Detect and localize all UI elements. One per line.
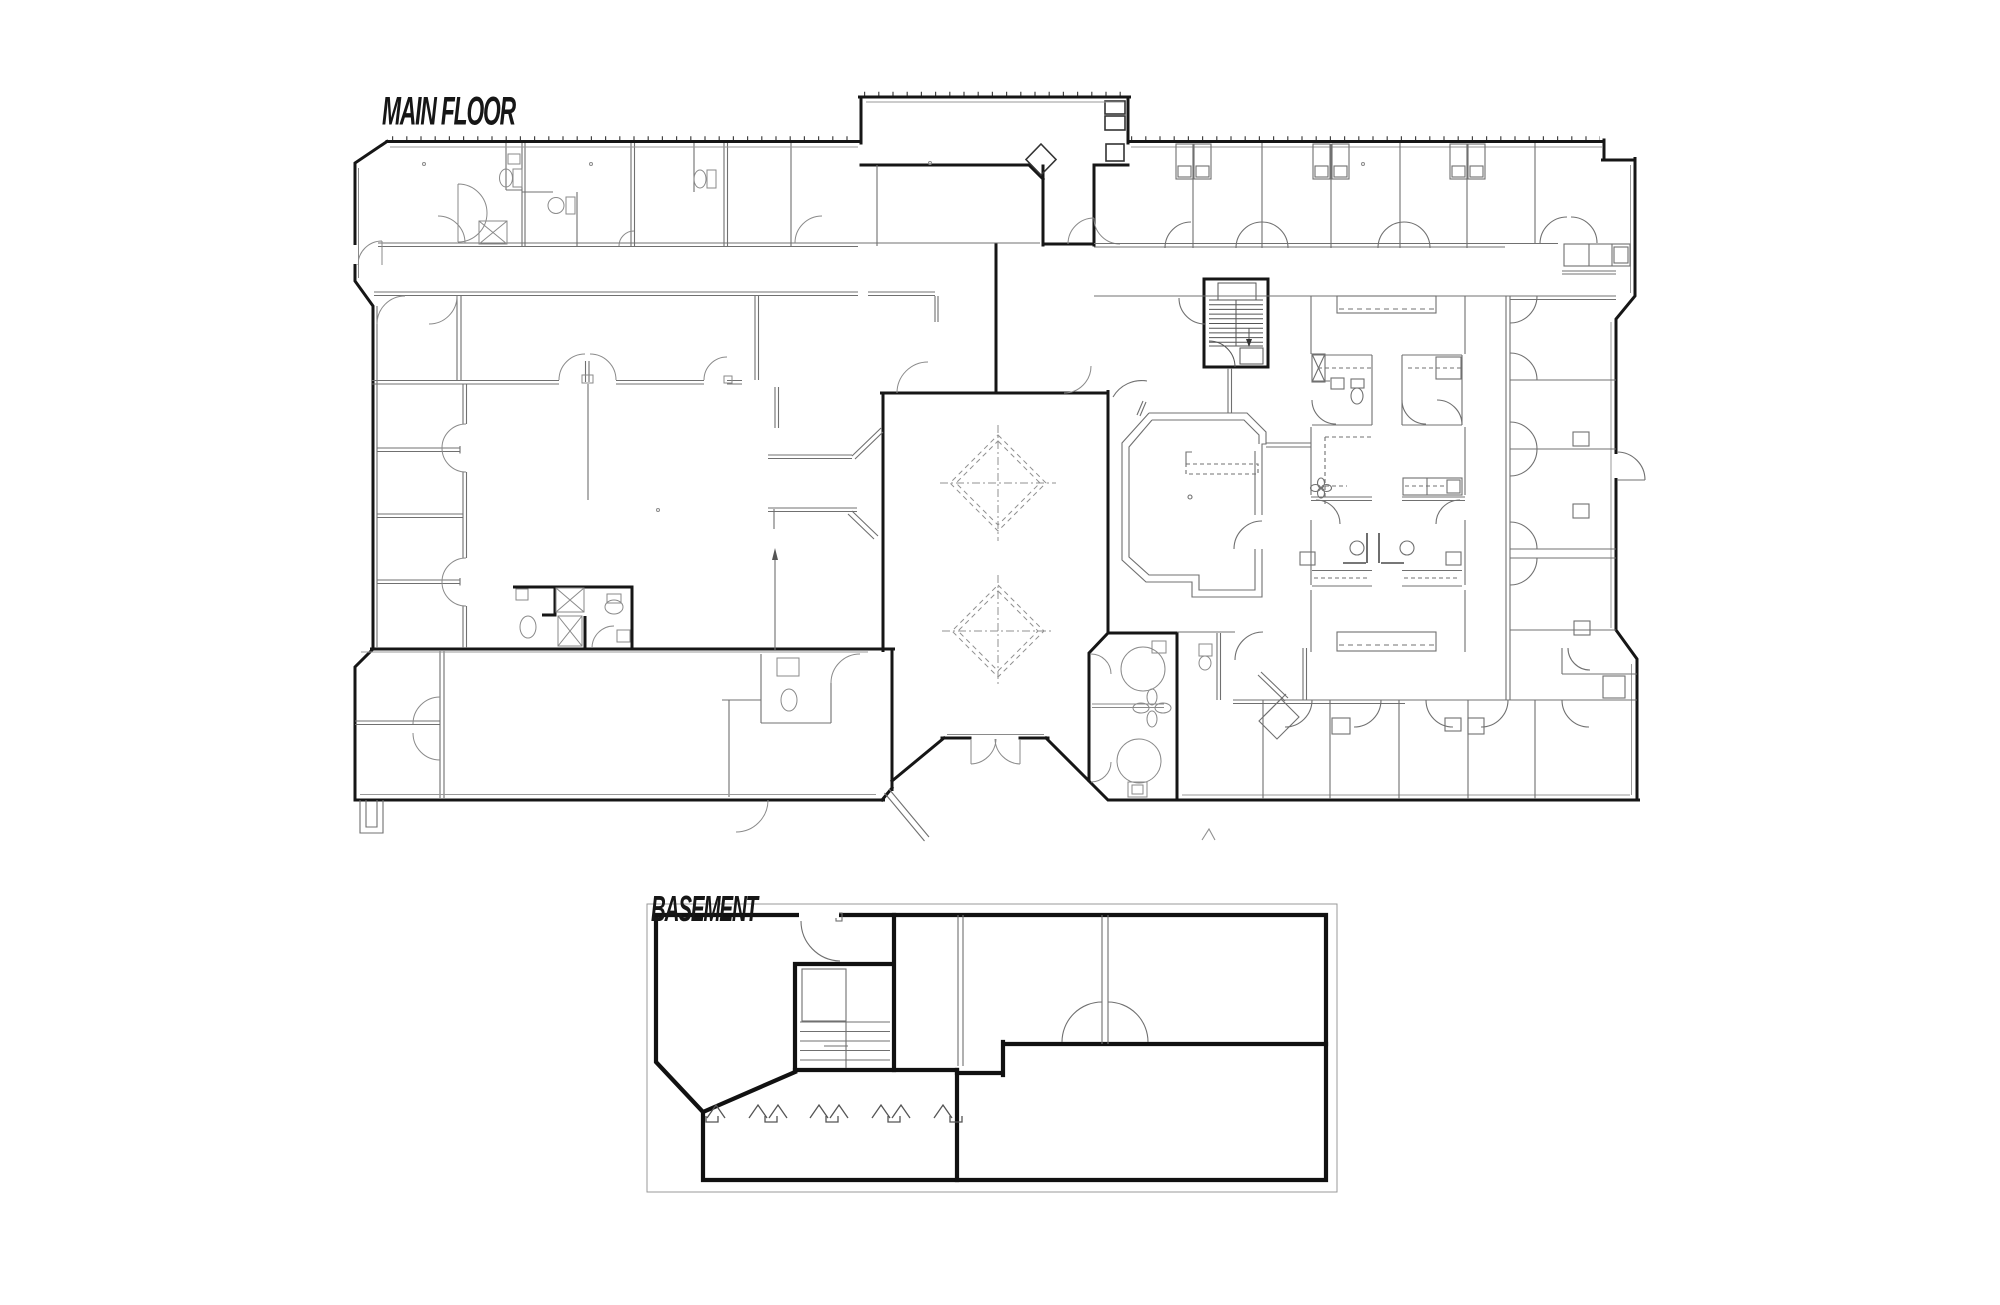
svg-text:MAIN FLOOR: MAIN FLOOR [382,89,516,133]
svg-text:BASEMENT: BASEMENT [651,889,760,930]
